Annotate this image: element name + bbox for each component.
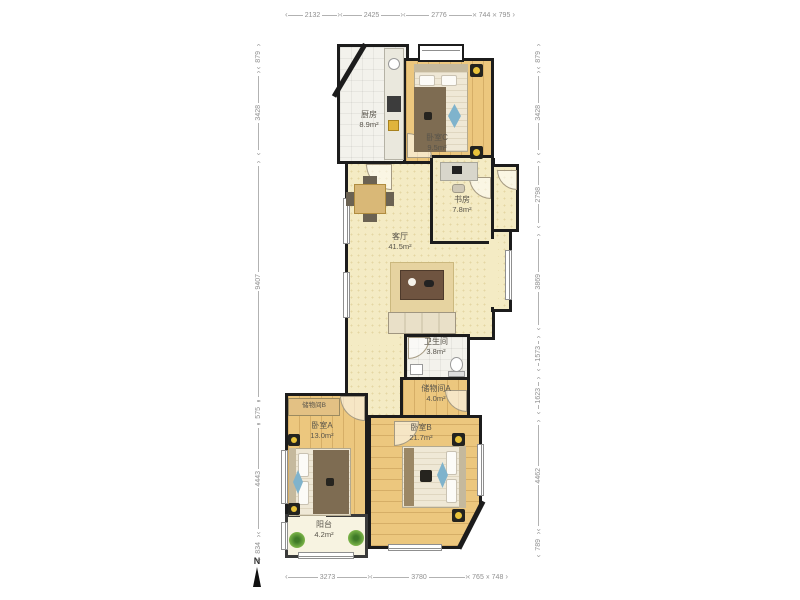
- dim-left-4: 575: [253, 405, 263, 420]
- window-balcony-front: [298, 552, 354, 559]
- room-name: 阳台: [295, 520, 353, 530]
- toilet-icon: [450, 357, 463, 372]
- table-decor-icon: [424, 280, 434, 287]
- pillow-icon: [446, 479, 457, 503]
- room-name: 储物间A: [407, 384, 465, 394]
- nightstand-icon: [470, 64, 483, 77]
- room-area: 4.0m²: [407, 394, 465, 403]
- dim-right-2: 3428: [533, 68, 543, 158]
- pillow-icon: [441, 75, 457, 86]
- dim-right-8: 789: [533, 534, 543, 555]
- bed-decor-icon: [420, 470, 432, 482]
- label-kitchen: 厨房 8.9m²: [340, 110, 398, 129]
- dim-bottom-4: 748: [488, 572, 507, 582]
- label-balcony: 阳台 4.2m²: [295, 520, 353, 539]
- washbasin-icon: [410, 364, 423, 375]
- window-balcony-left: [281, 522, 288, 550]
- room-area: 13.0m²: [293, 431, 351, 440]
- room-name: 客厅: [371, 232, 429, 242]
- north-arrow-icon: [253, 567, 261, 587]
- bay-window: [418, 44, 464, 62]
- dim-top-4: 744: [475, 10, 494, 20]
- room-area: 21.7m²: [392, 433, 450, 442]
- nightstand-icon: [470, 146, 483, 159]
- dim-top-5: 795: [494, 10, 515, 20]
- dim-right-7: 4462: [533, 417, 543, 534]
- sink-icon: [388, 58, 400, 70]
- pillow-icon: [298, 453, 309, 477]
- opening-living-hall: [350, 336, 398, 345]
- chair-icon: [363, 176, 377, 184]
- nightstand-icon: [288, 503, 300, 515]
- room-name: 书房: [433, 195, 491, 205]
- window-nook: [505, 250, 512, 300]
- label-bedroom-a: 卧室A 13.0m²: [293, 421, 351, 440]
- nightstand-icon: [452, 433, 465, 446]
- toilet-tank: [448, 371, 465, 377]
- compass: N: [246, 556, 268, 587]
- dim-bottom-3: 765: [468, 572, 488, 582]
- room-name: 卧室A: [293, 421, 351, 431]
- chair-icon: [363, 214, 377, 222]
- office-chair-icon: [452, 184, 465, 193]
- dim-top-3: 2776: [403, 10, 475, 20]
- window-glass-line: [422, 50, 460, 51]
- coffee-table-icon: [400, 270, 444, 300]
- dim-left-1: 879: [253, 45, 263, 68]
- dim-right-3: 2798: [533, 158, 543, 231]
- chair-icon: [346, 192, 354, 206]
- dim-right-1: 879: [533, 45, 543, 68]
- dim-left-3: 9407: [253, 158, 263, 405]
- dim-left-2: 3428: [253, 68, 263, 158]
- pillow-icon: [446, 451, 457, 475]
- window-bedroom-b-right: [477, 444, 484, 496]
- label-study: 书房 7.8m²: [433, 195, 491, 214]
- bed-decor-icon: [326, 478, 334, 486]
- room-name: 卫生间: [407, 337, 465, 347]
- computer-icon: [452, 166, 462, 174]
- label-bathroom: 卫生间 3.8m²: [407, 337, 465, 356]
- dim-bottom-1: 3273: [285, 572, 370, 582]
- window-bedroom-b-front: [388, 544, 442, 551]
- dim-right-5: 1573: [533, 333, 543, 374]
- label-storage-a: 储物间A 4.0m²: [407, 384, 465, 403]
- room-name: 卧室C: [408, 133, 466, 143]
- label-living: 客厅 41.5m²: [371, 232, 429, 251]
- room-area: 3.8m²: [407, 347, 465, 356]
- floor-plan: 厨房 8.9m² 卧室C 9.5m² 书房 7.8m² 客厅 41.5m² 卫生…: [0, 0, 800, 600]
- room-area: 9.5m²: [408, 143, 466, 152]
- bed-decor-icon: [424, 112, 432, 120]
- room-area: 41.5m²: [371, 242, 429, 251]
- window-bedroom-a: [281, 450, 288, 504]
- headboard: [459, 446, 466, 508]
- chair-icon: [386, 192, 394, 206]
- room-area: 8.9m²: [340, 120, 398, 129]
- room-name: 卧室B: [392, 423, 450, 433]
- dim-left-5: 4443: [253, 420, 263, 537]
- pillow-icon: [419, 75, 435, 86]
- label-bedroom-c: 卧室C 9.5m²: [408, 133, 466, 152]
- opening-living-nook: [489, 239, 498, 307]
- compass-label: N: [246, 556, 268, 566]
- label-storage-b: 储物间B: [288, 402, 340, 410]
- room-area: 4.2m²: [295, 530, 353, 539]
- blanket: [404, 448, 414, 506]
- dim-top-1: 2132: [285, 10, 340, 20]
- window-living-2: [343, 272, 350, 318]
- room-name: 储物间B: [288, 402, 340, 410]
- nightstand-icon: [452, 509, 465, 522]
- sofa-icon: [388, 312, 456, 334]
- room-name: 厨房: [340, 110, 398, 120]
- dim-right-6: 1623: [533, 374, 543, 417]
- headboard: [414, 64, 468, 72]
- dining-table-icon: [354, 184, 386, 214]
- table-decor-icon: [408, 278, 416, 286]
- label-bedroom-b: 卧室B 21.7m²: [392, 423, 450, 442]
- room-area: 7.8m²: [433, 205, 491, 214]
- dim-bottom-2: 3780: [370, 572, 468, 582]
- dim-right-4: 3869: [533, 231, 543, 333]
- dim-top-2: 2425: [340, 10, 403, 20]
